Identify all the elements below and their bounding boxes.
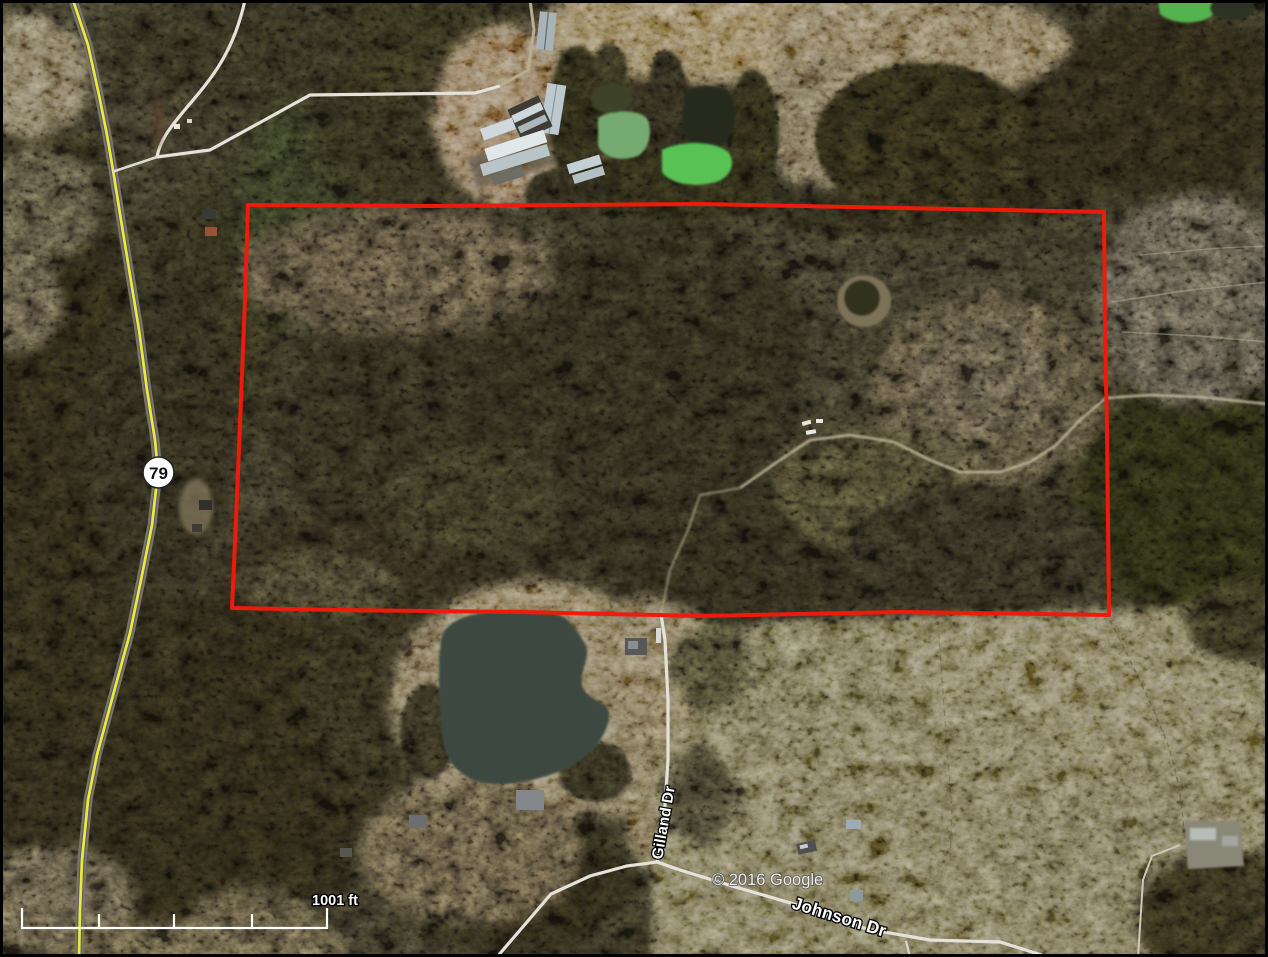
svg-text:© 2016 Google: © 2016 Google — [712, 871, 823, 889]
svg-text:79: 79 — [149, 464, 168, 483]
svg-text:1001 ft: 1001 ft — [312, 893, 358, 909]
